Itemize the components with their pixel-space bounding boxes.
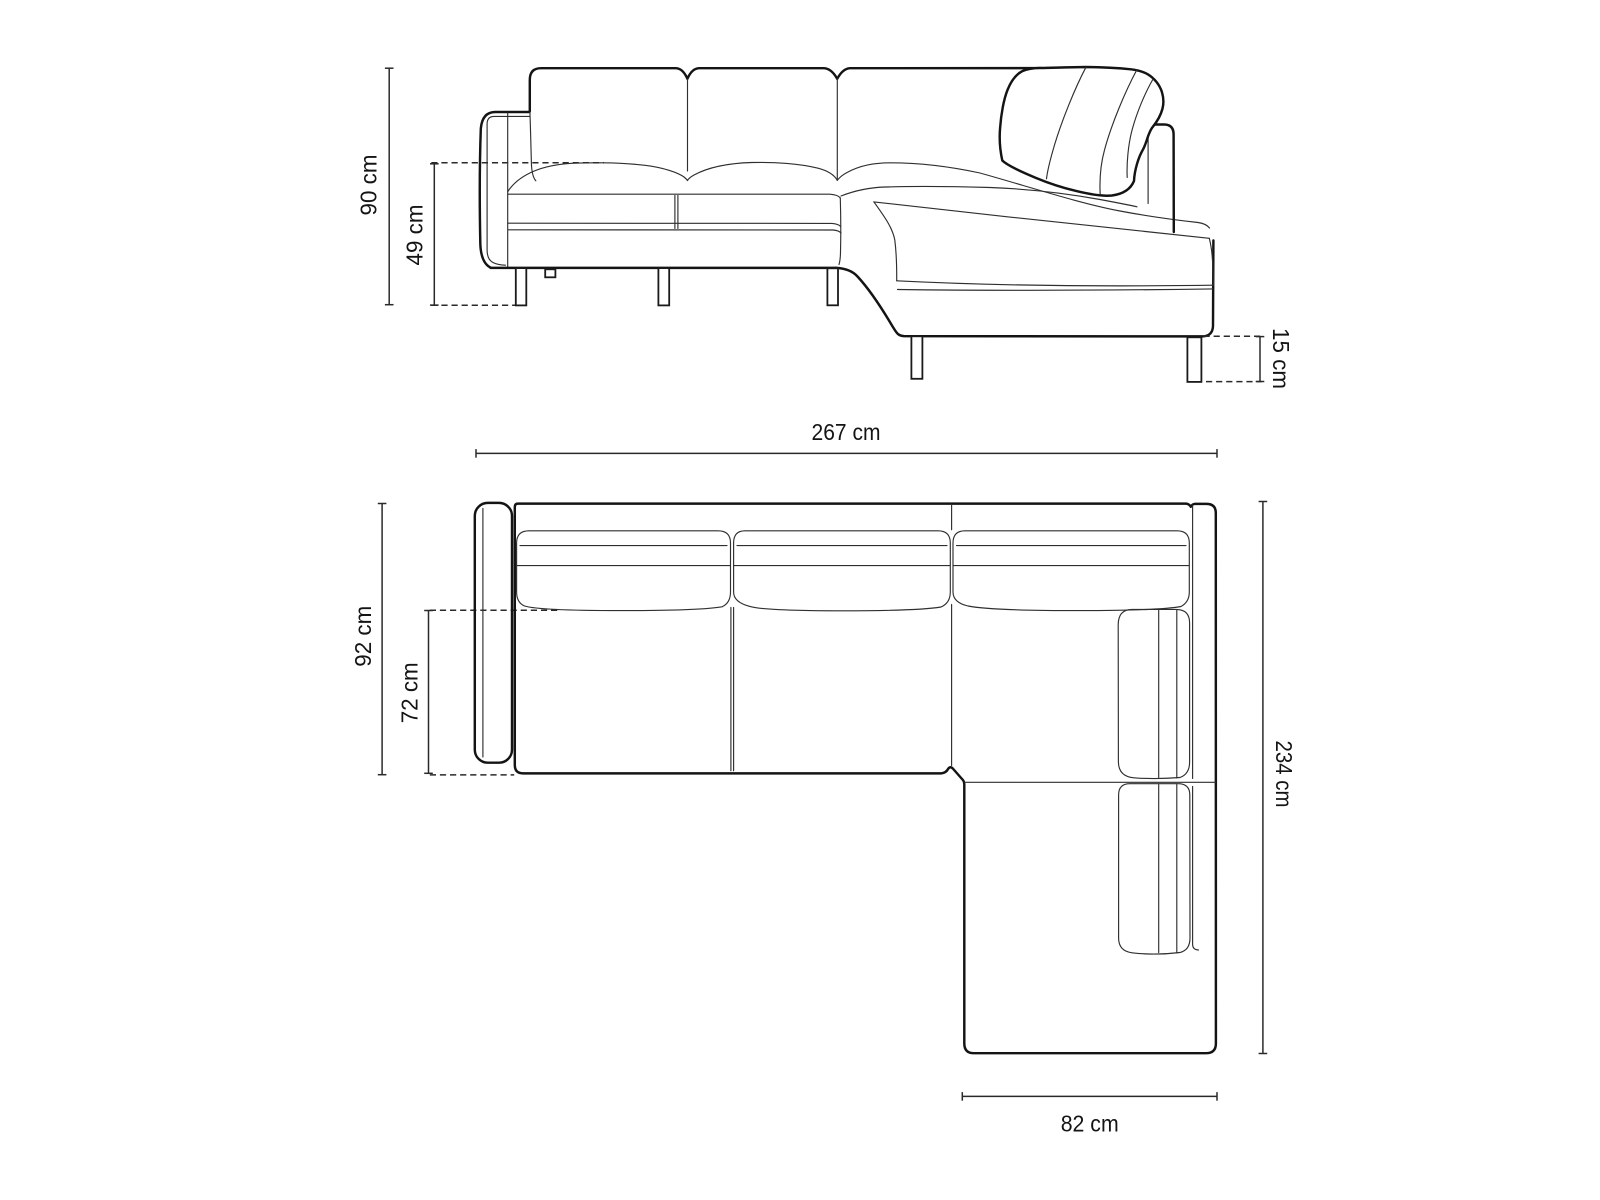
svg-text:49 cm: 49 cm (402, 205, 428, 266)
svg-text:234 cm: 234 cm (1271, 741, 1297, 808)
svg-text:90 cm: 90 cm (356, 155, 382, 216)
svg-text:92 cm: 92 cm (350, 606, 376, 667)
svg-text:267 cm: 267 cm (812, 419, 881, 445)
svg-text:15 cm: 15 cm (1268, 328, 1294, 389)
svg-text:82 cm: 82 cm (1061, 1110, 1119, 1136)
svg-text:72 cm: 72 cm (396, 662, 422, 723)
